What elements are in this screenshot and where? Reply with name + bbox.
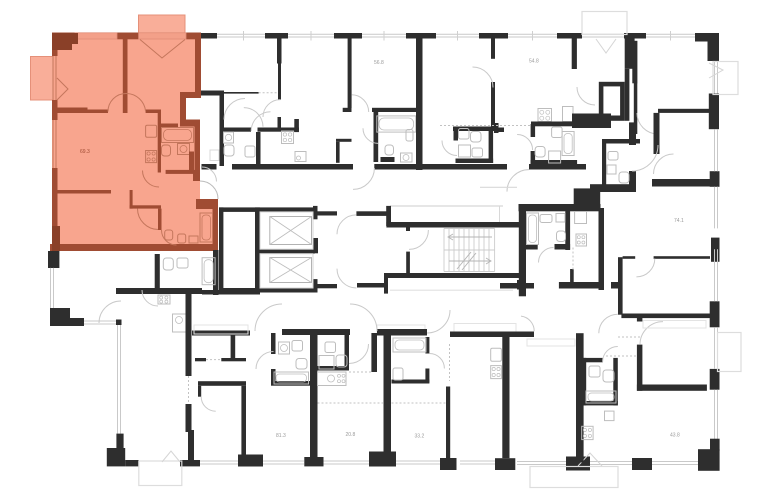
svg-text:33.2: 33.2 <box>415 434 425 440</box>
svg-text:81.3: 81.3 <box>276 433 286 439</box>
svg-text:69.3: 69.3 <box>80 149 90 155</box>
svg-text:54.8: 54.8 <box>529 59 539 65</box>
svg-text:20.8: 20.8 <box>346 432 356 438</box>
svg-text:56.8: 56.8 <box>374 60 384 66</box>
svg-text:43.8: 43.8 <box>670 433 680 439</box>
svg-text:74.1: 74.1 <box>674 218 684 224</box>
